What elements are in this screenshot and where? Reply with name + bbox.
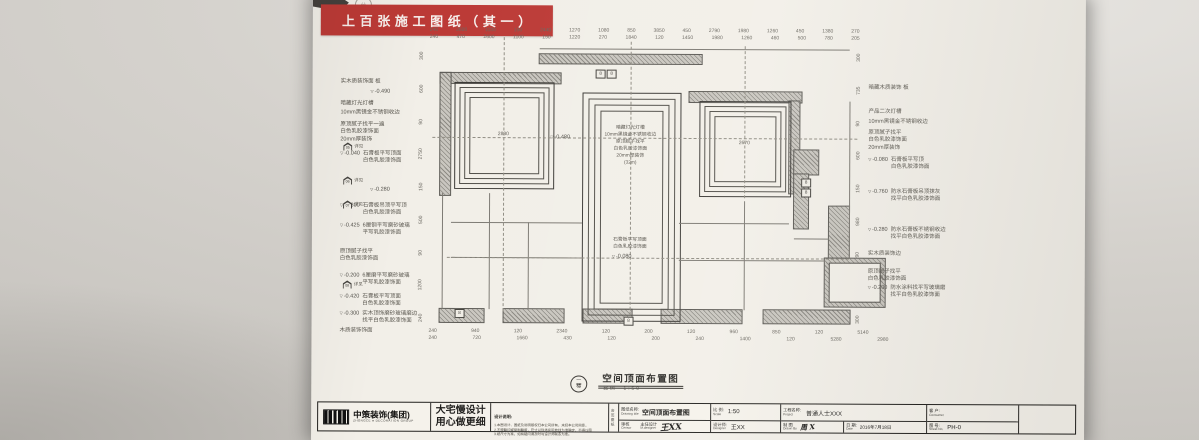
room-dimension-label: 2830 [488,131,518,137]
wall-segment [504,309,564,322]
elevation-value: -0.040 [340,150,360,157]
dimension-value: 240 [428,335,436,341]
dimension-value: 1260 [741,35,752,41]
title-block-sign-strip: 会签图纸 [608,404,618,432]
sign-strip-text: 会签图纸 [611,408,616,426]
dimension-value: 5140 [857,330,868,336]
ceiling-fixture-symbol: 8 [607,70,617,79]
partition-line [540,48,850,50]
dimension-value: 1260 [767,28,778,34]
dimension-row-top-2: 2404702600110015012202701840120145019801… [430,34,860,42]
dimension-value: 460 [771,35,779,41]
date-value: 2016年7月18日 [860,424,892,430]
elevation-value: -0.300 [340,310,360,317]
annotation-text: 暗藏灯光灯槽 [340,100,373,107]
annotation: 原顶腻子找平 白色乳胶漆饰面 [868,269,966,284]
ceiling-fixture-symbol: 8 [624,317,634,326]
partition-line [849,102,850,259]
dimension-value: 960 [730,329,738,335]
annotation-text: 6厘磨平写磨砂玻璃 平写乳胶漆饰面 [362,273,409,287]
annotation-text: 实木质装饰面 板 [341,78,381,85]
partition-line [679,223,789,224]
annotation: -0.300实木顶饰磨砂玻璃磨边 找平白色乳胶漆饰面 [340,310,438,325]
floor-indicator-bottom: 楼 [576,383,581,390]
annotation: 木质装饰饰面 [339,327,437,335]
annotation: 原顶腻子找平一遍 白色乳胶漆饰面 [340,121,438,136]
annotation-text: 原顶腻子找平一遍 白色乳胶漆饰面 [340,121,384,135]
wall-segment [794,150,818,174]
detail-marker-icon: 08 [343,280,352,288]
room-b-ceiling-note: 暗藏灯光灯槽 10mm黑镜金不锈钢收边 原顶腻子找平 白色乳胶漆饰面 20mm厚… [593,126,667,168]
ceiling-fixture-symbol: 8 [801,178,811,187]
annotation-text: 实木质装饰边 [868,251,901,258]
dimension-row-bottom-2: 2407201660430120200240140012052802980 [428,335,888,343]
title-block-project-cell: 工程名称:Project 普通人士XXX 制 图Drawn By 周 X 日 期… [780,404,926,433]
scale-value: 1:50 [728,409,740,415]
drawing-title-value: 空间顶面布置图 [642,407,690,417]
dimension-value: 205 [851,36,859,42]
dimension-value: 3850 [653,28,664,34]
dimension-value: 1450 [682,35,693,41]
elevation-value: -0.200 [340,272,360,279]
dimension-value: 2790 [709,28,720,34]
annotation-text: 6厘钢平写磨砂玻璃 平写乳胶漆饰面 [363,223,410,237]
dimension-value: 2340 [556,328,567,334]
annotation: 10mm黑镜金不锈钢收边 [868,119,966,127]
partition-line [679,260,825,261]
annotation-text: 木质装饰饰面 [339,327,372,334]
slogan-line-1: 大宅慢设计 [436,404,486,415]
annotation: 20mm厚装饰 [868,145,966,153]
dimension-value: 450 [796,28,804,34]
dimension-value: 90 [855,120,861,126]
dimension-value: 470 [457,34,465,40]
annotation-text: 产品二次灯槽 [868,109,901,116]
dimension-value: 300 [855,316,861,324]
m-designer-signature: 王XX [660,420,682,433]
dimension-value: 120 [655,35,663,41]
dimension-value: 240 [696,336,704,342]
company-name: 中策装饰(集团) [353,410,414,419]
annotation: 原顶腻子找平 白色乳胶漆饰面 [340,248,438,263]
dimension-value: 1400 [740,336,751,342]
note-line: 3.纸尺寸为准，如有疑问请及时与设计师联系为准。 [494,432,605,437]
dimension-value: 120 [602,329,610,335]
title-block-consumer-cell: 客 户:Consumer 图 号:Sheet No. PH-0 [926,405,1018,433]
dimension-value: 500 [798,35,806,41]
company-logo-icon [323,409,349,424]
annotation: -0.490 [371,89,469,97]
title-block: 中策装饰(集团) ZHONGCE ● DECORATION GROUP 大宅慢设… [317,401,1076,434]
annotation: -0.200防水涂料找平写玻璃磨 找平白色乳胶漆饰面 [868,285,966,300]
wall-segment [764,310,850,323]
annotation: 暗藏木质装饰 板 [869,85,967,93]
photo-background: 分 上 百 张 施 工 图 纸 （ 其 一 ） 2402600110015024… [0,0,1199,440]
notes-title: 设计说明: [494,414,512,419]
partition-line [451,222,582,223]
title-block-slogan-cell: 大宅慢设计用心做更细 [430,403,490,431]
elevation-value: -0.425 [340,222,360,229]
paper-lighting-overlay [311,0,1086,440]
annotation: 10mm黑镜金不锈钢收边 [340,109,438,117]
ceiling-fixture-symbol: 8 [801,188,811,197]
elevation-value: -0.080 [868,157,888,164]
detail-marker: 06详见 [343,176,363,184]
detail-marker: 08详见 [343,280,363,288]
annotation: -0.760防水石膏板吊顶抹灰 找平白色乳胶漆饰面 [868,189,966,204]
dimension-value: 300 [856,54,862,62]
dimension-value: 120 [786,336,794,342]
partition-line [744,201,745,310]
dimension-value: 2440 [540,27,551,33]
annotation-text: 防水石膏板不锈钢收边 找平白色乳胶漆饰面 [891,227,946,242]
dimension-value: 200 [651,336,659,342]
annotation: 实木质装饰边 [868,251,966,259]
wall-segment [540,54,702,64]
room-dimension-label: 2670 [729,140,759,146]
room-b-lower-note: 石膏板平写顶面 白色乳胶漆饰面 [593,238,667,252]
dimension-value: 1980 [712,35,723,41]
annotation-text: 防水涂料找平写玻璃磨 找平白色乳胶漆饰面 [890,285,945,300]
annotation-text: 石膏板平写顶 白色乳胶漆饰面 [891,157,930,171]
dimension-value: 300 [419,52,425,60]
dimension-value: 1220 [569,34,580,40]
title-block-scale-cell: 比 例:Scale 1:50 设计师:Designer 王XX [710,404,780,432]
title-block-notes-cell: 设计说明: 1.本图设计、图纸及说明版权归本公司所有，未经本公司同意，2.不得翻… [490,403,608,432]
dimension-value: 2980 [877,337,888,343]
detail-marker: 05详见 [343,142,363,150]
annotation-text: 原顶腻子找平 白色乳胶漆饰面 [868,130,907,144]
detail-marker: 07详见 [343,200,363,208]
dimension-value: 850 [627,28,635,34]
designer-value: 王XX [731,422,745,431]
sheet-number-value: PH-0 [947,425,961,431]
partition-line [489,193,490,309]
dimension-value: 270 [851,29,859,35]
annotation-text: 石膏板平写顶面 白色乳胶漆饰面 [362,294,401,308]
annotation: -0.280 [370,187,468,195]
annotation: 原顶腻子找平 白色乳胶漆饰面 [868,130,966,145]
slogan-line-2: 用心做更细 [436,417,486,428]
elevation-mark: -0.480 [550,134,580,141]
partition-line [794,238,829,239]
dimension-value: 1100 [513,34,524,40]
annotation-text: 暗藏木质装饰 板 [869,85,909,92]
dimension-value: 1980 [738,28,749,34]
dimension-value: 720 [473,335,481,341]
dimension-value: 150 [542,34,550,40]
dimension-value: 120 [607,336,615,342]
dimension-value: 430 [563,335,571,341]
annotation-text: 石膏板吊顶平写顶 白色乳胶漆饰面 [363,203,407,217]
title-block-logo-cell: 中策装饰(集团) ZHONGCE ● DECORATION GROUP [318,402,430,430]
elevation-value: -0.280 [868,227,888,234]
annotation: -0.420石膏板平写顶面 白色乳胶漆饰面 [340,293,438,308]
elevation-mark: -0.080 [612,254,652,261]
dimension-value: 270 [599,35,607,41]
dimension-value: 120 [687,329,695,335]
ceiling-fixture-symbol: 8 [596,70,606,79]
elevation-value: -0.420 [340,293,360,300]
detail-marker-icon: 06 [343,176,352,184]
dimension-value: 120 [514,328,522,334]
annotation: -0.4256厘钢平写磨砂玻璃 平写乳胶漆饰面 [340,222,438,237]
dimension-value: 120 [815,330,823,336]
dimension-value: 1100 [485,27,496,33]
elevation-value: -0.490 [371,89,391,96]
dimension-value: 1380 [822,29,833,35]
elevation-value: -0.760 [868,189,888,196]
partition-line [442,193,443,309]
dimension-value: 150 [514,27,522,33]
floor-indicator: 一 楼 [570,375,587,392]
dimension-value: 240 [430,27,438,33]
wall-segment [829,207,849,259]
dimension-value: 735 [856,86,862,94]
dimension-value: 240 [430,34,438,40]
annotation-text: 10mm黑镜金不锈钢收边 [340,109,399,116]
partition-line [528,222,529,309]
plan-scale: 比例 1:50 [603,385,641,392]
dimension-value: 450 [683,28,691,34]
dimension-value: 1840 [626,35,637,41]
company-name-en: ZHONGCE ● DECORATION GROUP [353,420,414,423]
dimension-value: 200 [644,329,652,335]
dimension-value: 850 [772,329,780,335]
dimension-value: 1080 [598,28,609,34]
dimension-value: 150 [855,185,861,193]
dimension-value: 90 [855,251,861,257]
annotation: -0.040石膏板平写顶面 白色乳胶漆饰面 [340,150,438,165]
title-block-tail-cell [1018,405,1073,433]
annotation-text: 20mm厚装饰 [868,145,900,152]
ceiling-fixture-symbol: 8 [455,309,465,318]
dimension-value: 1660 [517,335,528,341]
annotation-text: 实木顶饰磨砂玻璃磨边 找平白色乳胶漆饰面 [362,311,417,326]
notes-lines: 1.本图设计、图纸及说明版权归本公司所有，未经本公司同意，2.不得翻印或复制翻版… [494,405,605,437]
dimension-value: 1270 [569,27,580,33]
drawing-sheet: 分 上 百 张 施 工 图 纸 （ 其 一 ） 2402600110015024… [311,0,1086,440]
dimension-value: 780 [824,36,832,42]
dimension-value: 980 [855,217,861,225]
annotation-text: 原顶腻子找平 白色乳胶漆饰面 [868,269,907,283]
dimension-value: 940 [471,328,479,334]
title-block-drawing-title-cell: 图纸名称:Drawing title 空间顶面布置图 审核Censor 主任设计… [618,404,710,432]
detail-marker-icon: 07 [343,200,352,208]
annotation-text: 防水石膏板吊顶抹灰 找平白色乳胶漆饰面 [891,189,941,203]
project-value: 普通人士XXX [806,408,842,417]
dimension-value: 5280 [830,337,841,343]
annotation: 产品二次灯槽 [868,109,966,117]
dimension-value: 2600 [483,34,494,40]
dimension-value: 600 [855,152,861,160]
annotation-text: 原顶腻子找平 白色乳胶漆饰面 [340,248,379,262]
elevation-value: -0.200 [868,285,888,292]
dimension-value: 2600 [456,27,467,33]
detail-marker-icon: 05 [343,142,352,150]
annotation: -0.280防水石膏板不锈钢收边 找平白色乳胶漆饰面 [868,227,966,242]
annotation: 暗藏灯光灯槽 [340,100,438,108]
annotation: -0.080石膏板平写顶 白色乳胶漆饰面 [868,157,966,172]
drawn-by-signature: 周 X [800,422,815,433]
annotation-text: 石膏板平写顶面 白色乳胶漆饰面 [363,151,402,165]
annotation: 实木质装饰面 板 [341,78,439,86]
annotation-text: 10mm黑镜金不锈钢收边 [868,119,927,126]
elevation-value: -0.280 [370,187,390,194]
